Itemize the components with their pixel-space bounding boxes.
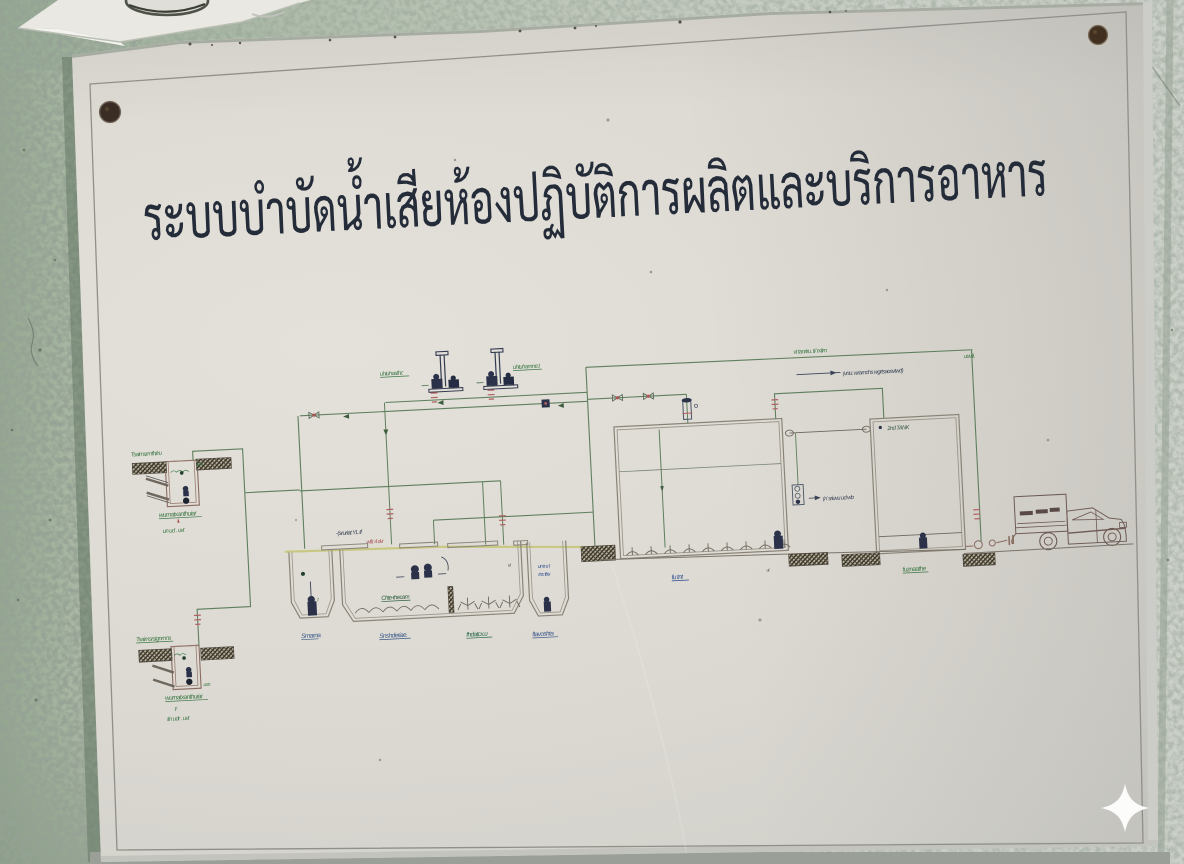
svg-text:(vt tu: wramchs wgrtsaosvtwd): (vt tu: wramchs wgrtsaosvtwd) [842, 368, 903, 377]
svg-text:2nd TANK: 2nd TANK [886, 425, 911, 432]
svg-text:t/: t/ [174, 706, 177, 712]
svg-text:ut: ut [766, 567, 770, 572]
svg-text:un tr u t: un tr u t [538, 563, 551, 570]
svg-text:un ud . uvt: un ud . uvt [163, 528, 186, 535]
svg-text:Tsaimsrmfhi/ru: Tsaimsrmfhi/ru [131, 451, 163, 459]
svg-text:-(sruriat YL tf: -(sruriat YL tf [336, 530, 364, 537]
svg-text:(n`sriuvu ud wb: (n`sriuvu ud wb [823, 495, 855, 503]
svg-text:rt rc tbu: rt rc tbu [538, 571, 551, 578]
svg-text:ut: ut [508, 562, 512, 567]
svg-text:vt tanriru. ti/ rxtim: vt tanriru. ti/ rxtim [793, 348, 827, 356]
svg-text:ut.tvfti.: ut.tvfti. [964, 354, 976, 361]
svg-text:ur.tx: ur.tx [203, 682, 211, 688]
svg-text:wfti: 4 dvi: wfti: 4 dvi [366, 539, 384, 546]
svg-text:t: t [317, 597, 319, 603]
svg-text:tin udr . uvt: tin udr . uvt [167, 716, 190, 723]
